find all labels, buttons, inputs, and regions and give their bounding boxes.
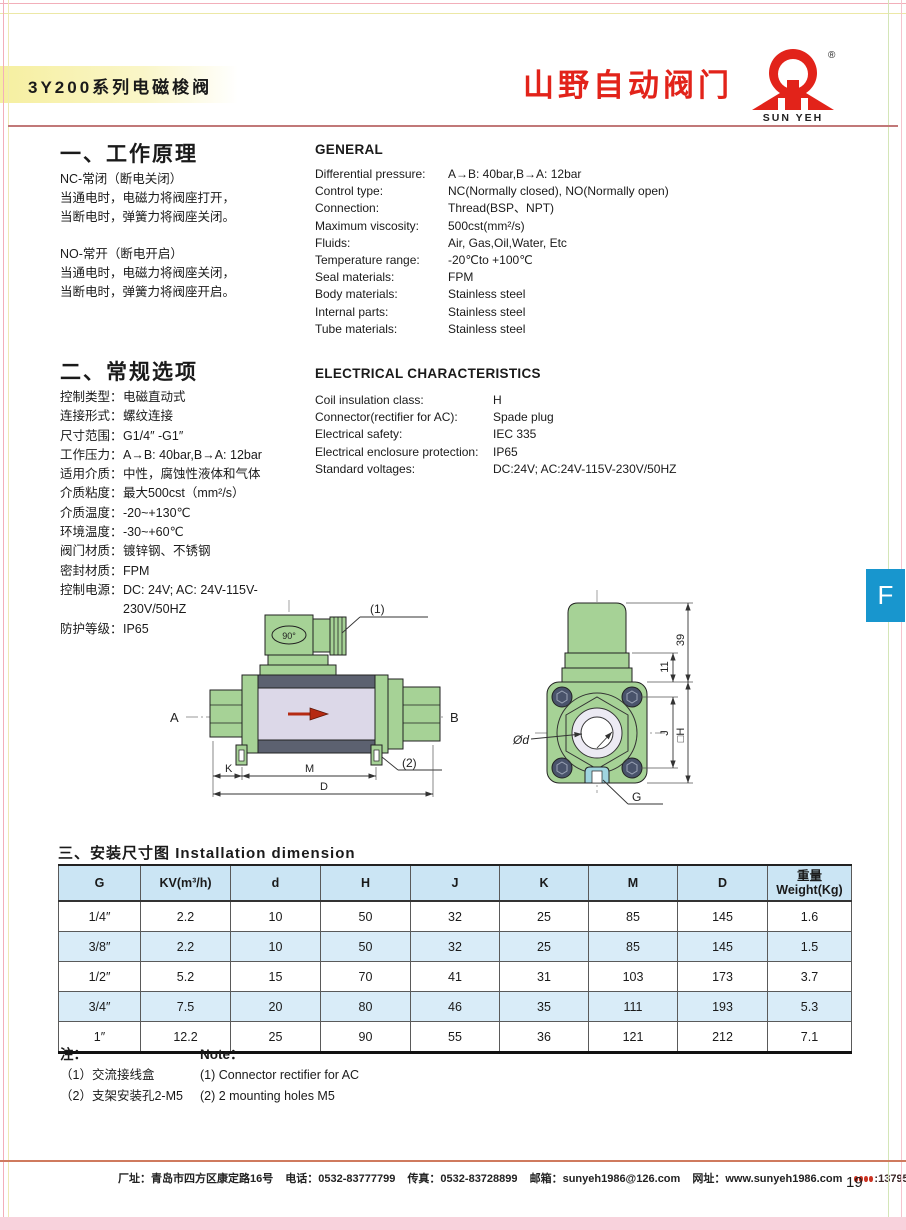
- section-heading-general: GENERAL: [315, 142, 383, 157]
- spec-value: -20~+130℃: [123, 504, 191, 523]
- cell-dd: 145: [678, 901, 768, 932]
- spec-value: Stainless steel: [448, 304, 525, 321]
- spec-value: 电磁直动式: [123, 388, 186, 407]
- footer-website: 网址：www.sunyeh1986.com: [692, 1173, 842, 1185]
- footer-fax: 传真：0532-83728899: [407, 1173, 517, 1185]
- table-row: 3/4″ 7.5 20 80 46 35 111 193 5.3: [59, 992, 852, 1022]
- spec-value: H: [493, 392, 502, 409]
- note-item: (2) 2 mounting holes M5: [200, 1086, 359, 1107]
- cell-j: 32: [411, 932, 500, 962]
- cell-j: 32: [411, 901, 500, 932]
- cell-g: 3/4″: [59, 992, 141, 1022]
- valve-end-view-drawing: Ød G 39 11 J □H: [505, 588, 740, 823]
- spec-row: Tube materials: Stainless steel: [315, 321, 735, 338]
- spec-value: 镀锌钢、不锈钢: [123, 542, 211, 561]
- sun-yeh-logo-icon: ® SUN YEH: [748, 46, 840, 122]
- text-line: 当断电时，弹簧力将阀座开启。: [60, 283, 235, 302]
- table-row: 1/2″ 5.2 15 70 41 31 103 173 3.7: [59, 962, 852, 992]
- electrical-spec-list: Coil insulation class: H Connector(recti…: [315, 392, 745, 478]
- principle-nc-text: NC-常闭（断电关闭）当通电时，电磁力将阀座打开，当断电时，弹簧力将阀座关闭。: [60, 170, 235, 227]
- cell-m: 85: [589, 932, 678, 962]
- cell-k: 25: [500, 901, 589, 932]
- note-item: （2）支架安装孔2-M5: [60, 1086, 183, 1107]
- port-a-label: A: [170, 710, 179, 725]
- installation-heading: 三、安装尺寸图 Installation dimension: [58, 842, 356, 863]
- cell-weight: 5.3: [768, 992, 852, 1022]
- section-heading-electrical: ELECTRICAL CHARACTERISTICS: [315, 366, 541, 381]
- spec-value: Spade plug: [493, 409, 554, 426]
- spec-label: 尺寸范围：: [60, 427, 123, 446]
- footer: 厂址：青岛市四方区康定路16号 电话：0532-83777799 传真：0532…: [118, 1170, 906, 1186]
- coil-cylinder: [568, 603, 626, 653]
- dim-j-label: J: [659, 730, 671, 736]
- cell-kv: 5.2: [141, 962, 231, 992]
- spec-label: Electrical safety:: [315, 426, 493, 443]
- spec-value: 最大500cst（mm²/s）: [123, 484, 245, 503]
- cell-kv: 2.2: [141, 901, 231, 932]
- spec-label: 连接形式：: [60, 407, 123, 426]
- spec-row: 密封材质： FPM: [60, 562, 310, 581]
- spec-row: 尺寸范围： G1/4″ -G1″: [60, 427, 310, 446]
- installation-dimension-table: GKV(m³/h)dHJKMD 重量 Weight(Kg) 1/4″ 2.2 1…: [58, 864, 852, 1054]
- cell-dd: 173: [678, 962, 768, 992]
- cell-weight: 1.6: [768, 901, 852, 932]
- installation-heading-en: Installation dimension: [175, 845, 355, 862]
- spec-row: Temperature range: -20℃to +100℃: [315, 252, 735, 269]
- note-en-heading: Note：: [200, 1044, 359, 1065]
- spec-label: Electrical enclosure protection:: [315, 444, 493, 461]
- spec-value: A→B: 40bar,B→A: 12bar: [448, 166, 581, 183]
- text-line: 当断电时，弹簧力将阀座关闭。: [60, 208, 235, 227]
- dim-od-label: Ød: [512, 733, 529, 747]
- callout-2-label: (2): [402, 756, 417, 770]
- footer-phone: 电话：0532-83777799: [285, 1173, 395, 1185]
- spec-label: Internal parts:: [315, 304, 448, 321]
- cell-dd: 145: [678, 932, 768, 962]
- footer-address: 厂址：青岛市四方区康定路16号: [118, 1173, 273, 1185]
- weight-en: Weight(Kg): [768, 883, 851, 897]
- spec-row: 适用介质： 中性，腐蚀性液体和气体: [60, 465, 310, 484]
- spec-value: -30~+60℃: [123, 523, 184, 542]
- column-header: H: [321, 865, 411, 901]
- spec-row: Body materials: Stainless steel: [315, 286, 735, 303]
- spec-row: Internal parts: Stainless steel: [315, 304, 735, 321]
- table-header-row: GKV(m³/h)dHJKMD 重量 Weight(Kg): [59, 865, 852, 901]
- spec-label: 阀门材质：: [60, 542, 123, 561]
- spec-row: Standard voltages: DC:24V; AC:24V-115V-2…: [315, 461, 745, 478]
- port-bore: [581, 717, 613, 749]
- section-heading-principle: 一、工作原理: [60, 138, 198, 168]
- mobile-icon: [864, 1176, 868, 1182]
- spec-row: 连接形式： 螺纹连接: [60, 407, 310, 426]
- note-item: （1）交流接线盒: [60, 1065, 183, 1086]
- angle-label: 90°: [282, 631, 296, 641]
- cell-d: 20: [231, 992, 321, 1022]
- column-header-weight: 重量 Weight(Kg): [768, 865, 852, 901]
- spec-label: Connector(rectifier for AC):: [315, 409, 493, 426]
- catalog-page: 3Y200系列电磁梭阀 山野自动阀门 ® SUN YEH 一、工作原理 NC-常…: [0, 0, 906, 1230]
- column-header: K: [500, 865, 589, 901]
- column-header: G: [59, 865, 141, 901]
- cell-weight: 3.7: [768, 962, 852, 992]
- spec-label: Tube materials:: [315, 321, 448, 338]
- cell-dd: 193: [678, 992, 768, 1022]
- cell-m: 111: [589, 992, 678, 1022]
- text-line: 当通电时，电磁力将阀座关闭，: [60, 264, 235, 283]
- dim-39-label: 39: [675, 634, 687, 646]
- spec-value: G1/4″ -G1″: [123, 427, 183, 446]
- cell-d: 10: [231, 901, 321, 932]
- frame-line: [0, 13, 906, 14]
- cell-k: 35: [500, 992, 589, 1022]
- cell-weight: 7.1: [768, 1022, 852, 1053]
- cell-k: 36: [500, 1022, 589, 1053]
- bottom-band: [0, 1217, 906, 1230]
- spec-row: 控制类型： 电磁直动式: [60, 388, 310, 407]
- note-en: Note： (1) Connector rectifier for AC(2) …: [200, 1044, 359, 1107]
- mobile-icon: [869, 1176, 873, 1182]
- spec-label: 密封材质：: [60, 562, 123, 581]
- principle-no-text: NO-常开（断电开启）当通电时，电磁力将阀座关闭，当断电时，弹簧力将阀座开启。: [60, 245, 235, 302]
- cell-k: 25: [500, 932, 589, 962]
- brand-sub-text: SUN YEH: [763, 112, 824, 122]
- spec-value: Thread(BSP、NPT): [448, 200, 554, 217]
- cell-j: 46: [411, 992, 500, 1022]
- bracket-notch: [585, 767, 609, 783]
- footer-email: 邮箱：sunyeh1986@126.com: [530, 1173, 681, 1185]
- cell-h: 50: [321, 901, 411, 932]
- column-header: d: [231, 865, 321, 901]
- spec-value: Stainless steel: [448, 286, 525, 303]
- spec-label: 环境温度：: [60, 523, 123, 542]
- page-number: 19: [846, 1174, 863, 1191]
- cell-dd: 212: [678, 1022, 768, 1053]
- installation-heading-zh: 三、安装尺寸图: [58, 845, 170, 862]
- column-header: KV(m³/h): [141, 865, 231, 901]
- mounting-lug: [371, 745, 382, 765]
- cell-j: 41: [411, 962, 500, 992]
- dim-k-label: K: [225, 763, 233, 775]
- spec-label: Differential pressure:: [315, 166, 448, 183]
- text-line: NO-常开（断电开启）: [60, 245, 235, 264]
- text-line: 当通电时，电磁力将阀座打开，: [60, 189, 235, 208]
- spec-value: FPM: [448, 269, 473, 286]
- spec-label: 控制电源：: [60, 581, 123, 620]
- spec-row: Connector(rectifier for AC): Spade plug: [315, 409, 745, 426]
- column-header: J: [411, 865, 500, 901]
- port-b-label: B: [450, 710, 459, 725]
- spec-row: 工作压力： A→B: 40bar,B→A: 12bar: [60, 446, 310, 465]
- spec-label: 介质温度：: [60, 504, 123, 523]
- cell-g: 1/2″: [59, 962, 141, 992]
- mounting-lug: [236, 745, 247, 765]
- spec-row: 介质温度： -20~+130℃: [60, 504, 310, 523]
- spec-value: IEC 335: [493, 426, 536, 443]
- cell-g: 3/8″: [59, 932, 141, 962]
- spec-label: 控制类型：: [60, 388, 123, 407]
- spec-row: Differential pressure: A→B: 40bar,B→A: 1…: [315, 166, 735, 183]
- page-title: 3Y200系列电磁梭阀: [28, 73, 212, 98]
- note-zh-heading: 注：: [60, 1044, 183, 1065]
- spec-label: Seal materials:: [315, 269, 448, 286]
- brand-text: 山野自动阀门: [523, 60, 733, 105]
- dim-g-label: G: [632, 790, 641, 804]
- spec-value: Stainless steel: [448, 321, 525, 338]
- spec-value: 500cst(mm²/s): [448, 218, 525, 235]
- valve-body-band-top: [258, 675, 375, 688]
- spec-label: 介质粘度：: [60, 484, 123, 503]
- cell-d: 15: [231, 962, 321, 992]
- callout-1-label: (1): [370, 602, 385, 616]
- spec-row: Electrical safety: IEC 335: [315, 426, 745, 443]
- spec-value: A→B: 40bar,B→A: 12bar: [123, 446, 262, 465]
- spec-row: Coil insulation class: H: [315, 392, 745, 409]
- dim-h-label: □H: [675, 728, 687, 743]
- spec-label: Coil insulation class:: [315, 392, 493, 409]
- cell-kv: 2.2: [141, 932, 231, 962]
- spec-label: Control type:: [315, 183, 448, 200]
- spec-row: Control type: NC(Normally closed), NO(No…: [315, 183, 735, 200]
- spec-label: 适用介质：: [60, 465, 123, 484]
- cell-d: 10: [231, 932, 321, 962]
- spec-row: 阀门材质： 镀锌钢、不锈钢: [60, 542, 310, 561]
- spec-value: -20℃to +100℃: [448, 252, 533, 269]
- table-row: 1/4″ 2.2 10 50 32 25 85 145 1.6: [59, 901, 852, 932]
- spec-row: Electrical enclosure protection: IP65: [315, 444, 745, 461]
- dim-11-label: 11: [659, 661, 671, 672]
- spec-value: 中性，腐蚀性液体和气体: [123, 465, 261, 484]
- port-a-hex-nut: [210, 690, 242, 737]
- cell-m: 121: [589, 1022, 678, 1053]
- spec-value: DC:24V; AC:24V-115V-230V/50HZ: [493, 461, 676, 478]
- spec-row: Fluids: Air, Gas,Oil,Water, Etc: [315, 235, 735, 252]
- spec-row: 介质粘度： 最大500cst（mm²/s）: [60, 484, 310, 503]
- spec-label: 工作压力：: [60, 446, 123, 465]
- cell-g: 1/4″: [59, 901, 141, 932]
- spec-label: Fluids:: [315, 235, 448, 252]
- spec-label: Connection:: [315, 200, 448, 217]
- frame-line: [3, 0, 4, 1230]
- valve-side-view-drawing: 90° (1) (2): [130, 595, 475, 810]
- header-rule: [8, 125, 898, 127]
- side-index-tab: F: [866, 569, 905, 622]
- spec-label: Body materials:: [315, 286, 448, 303]
- spec-value: Air, Gas,Oil,Water, Etc: [448, 235, 567, 252]
- spec-label: Maximum viscosity:: [315, 218, 448, 235]
- valve-body-band-bottom: [258, 740, 375, 753]
- weight-zh: 重量: [768, 869, 851, 883]
- frame-line: [0, 3, 906, 4]
- spec-row: 环境温度： -30~+60℃: [60, 523, 310, 542]
- cell-kv: 7.5: [141, 992, 231, 1022]
- cell-m: 85: [589, 901, 678, 932]
- spec-row: Maximum viscosity: 500cst(mm²/s): [315, 218, 735, 235]
- section-heading-options: 二、常规选项: [60, 356, 198, 386]
- cell-h: 80: [321, 992, 411, 1022]
- note-zh: 注： （1）交流接线盒（2）支架安装孔2-M5: [60, 1044, 183, 1107]
- cell-j: 55: [411, 1022, 500, 1053]
- port-b-hex-nut: [403, 687, 440, 741]
- spec-row: Connection: Thread(BSP、NPT): [315, 200, 735, 217]
- dim-d-label: D: [320, 781, 328, 793]
- spec-row: Seal materials: FPM: [315, 269, 735, 286]
- cell-m: 103: [589, 962, 678, 992]
- spec-label: Temperature range:: [315, 252, 448, 269]
- spec-value: NC(Normally closed), NO(Normally open): [448, 183, 669, 200]
- spec-label: 防护等级：: [60, 620, 123, 639]
- cell-h: 70: [321, 962, 411, 992]
- general-spec-list: Differential pressure: A→B: 40bar,B→A: 1…: [315, 166, 735, 338]
- column-header: D: [678, 865, 768, 901]
- dim-m-label: M: [305, 763, 314, 775]
- cell-k: 31: [500, 962, 589, 992]
- column-header: M: [589, 865, 678, 901]
- frame-line: [8, 0, 9, 1230]
- cell-h: 50: [321, 932, 411, 962]
- spec-value: 螺纹连接: [123, 407, 173, 426]
- table-row: 3/8″ 2.2 10 50 32 25 85 145 1.5: [59, 932, 852, 962]
- spec-label: Standard voltages:: [315, 461, 493, 478]
- cable-gland: [330, 617, 346, 655]
- note-item: (1) Connector rectifier for AC: [200, 1065, 359, 1086]
- cell-weight: 1.5: [768, 932, 852, 962]
- footer-rule: [0, 1160, 906, 1162]
- text-line: NC-常闭（断电关闭）: [60, 170, 235, 189]
- registered-mark: ®: [828, 50, 836, 61]
- spec-value: FPM: [123, 562, 149, 581]
- spec-value: IP65: [493, 444, 518, 461]
